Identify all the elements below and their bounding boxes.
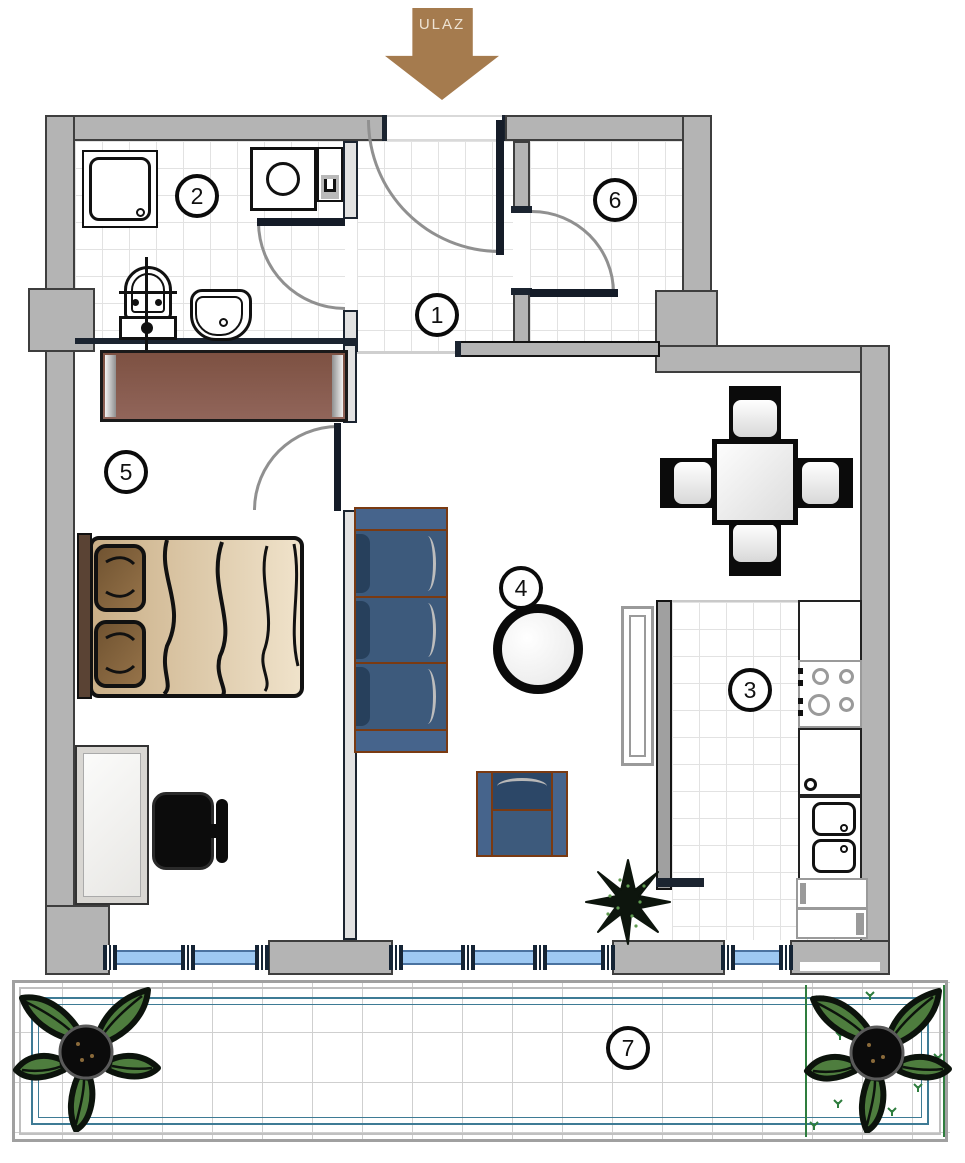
washbasin-drain [219, 318, 228, 327]
desk-top [83, 753, 141, 897]
window-mullion [103, 945, 117, 970]
floor-plan: ULAZ [0, 0, 965, 1163]
radiator-inner [629, 615, 646, 757]
burner [812, 668, 829, 685]
window-mullion [181, 945, 195, 970]
kitchen-living-wall [656, 600, 672, 890]
entrance-arrow-icon: ULAZ [385, 8, 499, 100]
counter-knob [804, 778, 817, 791]
office-chair-backrest [216, 799, 228, 863]
bathroom-door-leaf [257, 218, 345, 226]
window-mullion [601, 945, 615, 970]
wall-cap [455, 341, 461, 357]
room-badge-kitchen: 3 [728, 668, 772, 712]
dining-chair-top [729, 386, 781, 439]
toilet-axis-vertical [145, 257, 148, 353]
burner [839, 669, 854, 684]
shower-drain [136, 208, 145, 217]
desk [75, 745, 149, 905]
toilet-dot [155, 299, 162, 306]
terrace-sliding-door-panel [796, 908, 868, 939]
washbasin [190, 289, 252, 341]
sink-drain [840, 845, 848, 853]
kitchen-counter [798, 728, 862, 796]
bedroom-door-leaf [334, 423, 341, 511]
terrace-railing-teal-inner [38, 1004, 922, 1118]
tap-symbol [324, 179, 336, 192]
burner [839, 697, 854, 712]
closet-door-leaf [530, 289, 618, 297]
window-mullion [389, 945, 403, 970]
washbasin-inner [195, 296, 243, 336]
room-badge-terrace: 7 [606, 1026, 650, 1070]
window-mullion [461, 945, 475, 970]
terrace-plant-left [12, 982, 162, 1132]
sink-drain [840, 824, 848, 832]
sofa-seat [356, 598, 446, 663]
cooktop-knob [798, 698, 803, 704]
sofa-seat [356, 664, 446, 729]
double-bed [72, 526, 308, 708]
office-chair-seat [152, 792, 214, 870]
room-number: 7 [622, 1035, 635, 1062]
room-badge-closet: 6 [593, 178, 637, 222]
room-number: 3 [744, 677, 757, 704]
room-number: 6 [609, 187, 622, 214]
terrace-sliding-door-panel [796, 878, 868, 909]
kitchen-sink-unit [798, 796, 862, 880]
washing-machine-drum [266, 162, 300, 196]
exterior-wall-top-left [45, 115, 385, 141]
room-number: 5 [120, 459, 133, 486]
window-mullion [533, 945, 547, 970]
exterior-wall-kitchen-top [655, 345, 890, 373]
wall-corner-bottom-left [45, 905, 110, 975]
sofa-seat [356, 531, 446, 596]
hallway-living-wall [455, 341, 660, 357]
dining-table [712, 439, 798, 525]
wardrobe-end [105, 355, 116, 417]
terrace-plant-right [803, 983, 953, 1133]
room-number: 4 [515, 575, 528, 602]
room-number: 2 [191, 183, 204, 210]
radiator [621, 606, 654, 766]
kitchen-cabinet [798, 600, 862, 662]
armchair-cushion [493, 811, 551, 855]
door-handle [856, 913, 864, 935]
armchair-arm [478, 773, 491, 855]
burner [808, 694, 830, 716]
cooktop [798, 660, 862, 728]
coffee-table [493, 604, 583, 694]
room-badge-bathroom: 2 [175, 174, 219, 218]
living-room-window [391, 950, 614, 965]
room-badge-bedroom: 5 [104, 450, 148, 494]
armchair [476, 771, 568, 857]
bathroom-cabinet [317, 147, 343, 202]
wall-cap [511, 206, 532, 213]
bathroom-hall-wall-upper [343, 141, 358, 219]
toilet [118, 255, 193, 355]
door-handle [800, 883, 806, 904]
exterior-wall-top-right [505, 115, 712, 141]
dining-chair-left [660, 458, 715, 508]
indoor-plant [580, 856, 676, 948]
bedroom-door-swing-arc [253, 425, 338, 510]
sofa [354, 507, 448, 753]
wardrobe-end [332, 355, 343, 417]
terrace-door-threshold [800, 962, 880, 971]
wall-cap [511, 288, 532, 295]
sink-bowl [812, 802, 856, 836]
washing-machine [250, 147, 317, 211]
toilet-dot [132, 299, 139, 306]
sofa-armrest [356, 731, 446, 751]
armchair-backrest [493, 773, 551, 809]
room-badge-living-room: 4 [499, 566, 543, 610]
exterior-wall-left [45, 115, 75, 975]
room-badge-hallway: 1 [415, 293, 459, 337]
hall-closet-wall-upper [513, 141, 530, 213]
dining-chair-right [798, 458, 853, 508]
sofa-armrest [356, 509, 446, 529]
wall-pier-window-a [268, 940, 393, 975]
cooktop-knob [798, 668, 803, 674]
window-mullion [255, 945, 269, 970]
hallway-living-threshold [357, 351, 455, 354]
armchair-arm [553, 773, 566, 855]
cooktop-knob [798, 710, 803, 716]
toilet-axis-horizontal [119, 291, 177, 294]
window-mullion [779, 945, 793, 970]
window-mullion [721, 945, 735, 970]
wardrobe [100, 350, 348, 422]
room-number: 1 [431, 302, 444, 329]
entrance-label: ULAZ [385, 16, 499, 33]
dining-chair-bottom [729, 520, 781, 576]
entrance-door-leaf [496, 120, 504, 255]
cooktop-knob [798, 680, 803, 686]
shower-tray [82, 150, 158, 228]
sink-bowl [812, 839, 856, 873]
